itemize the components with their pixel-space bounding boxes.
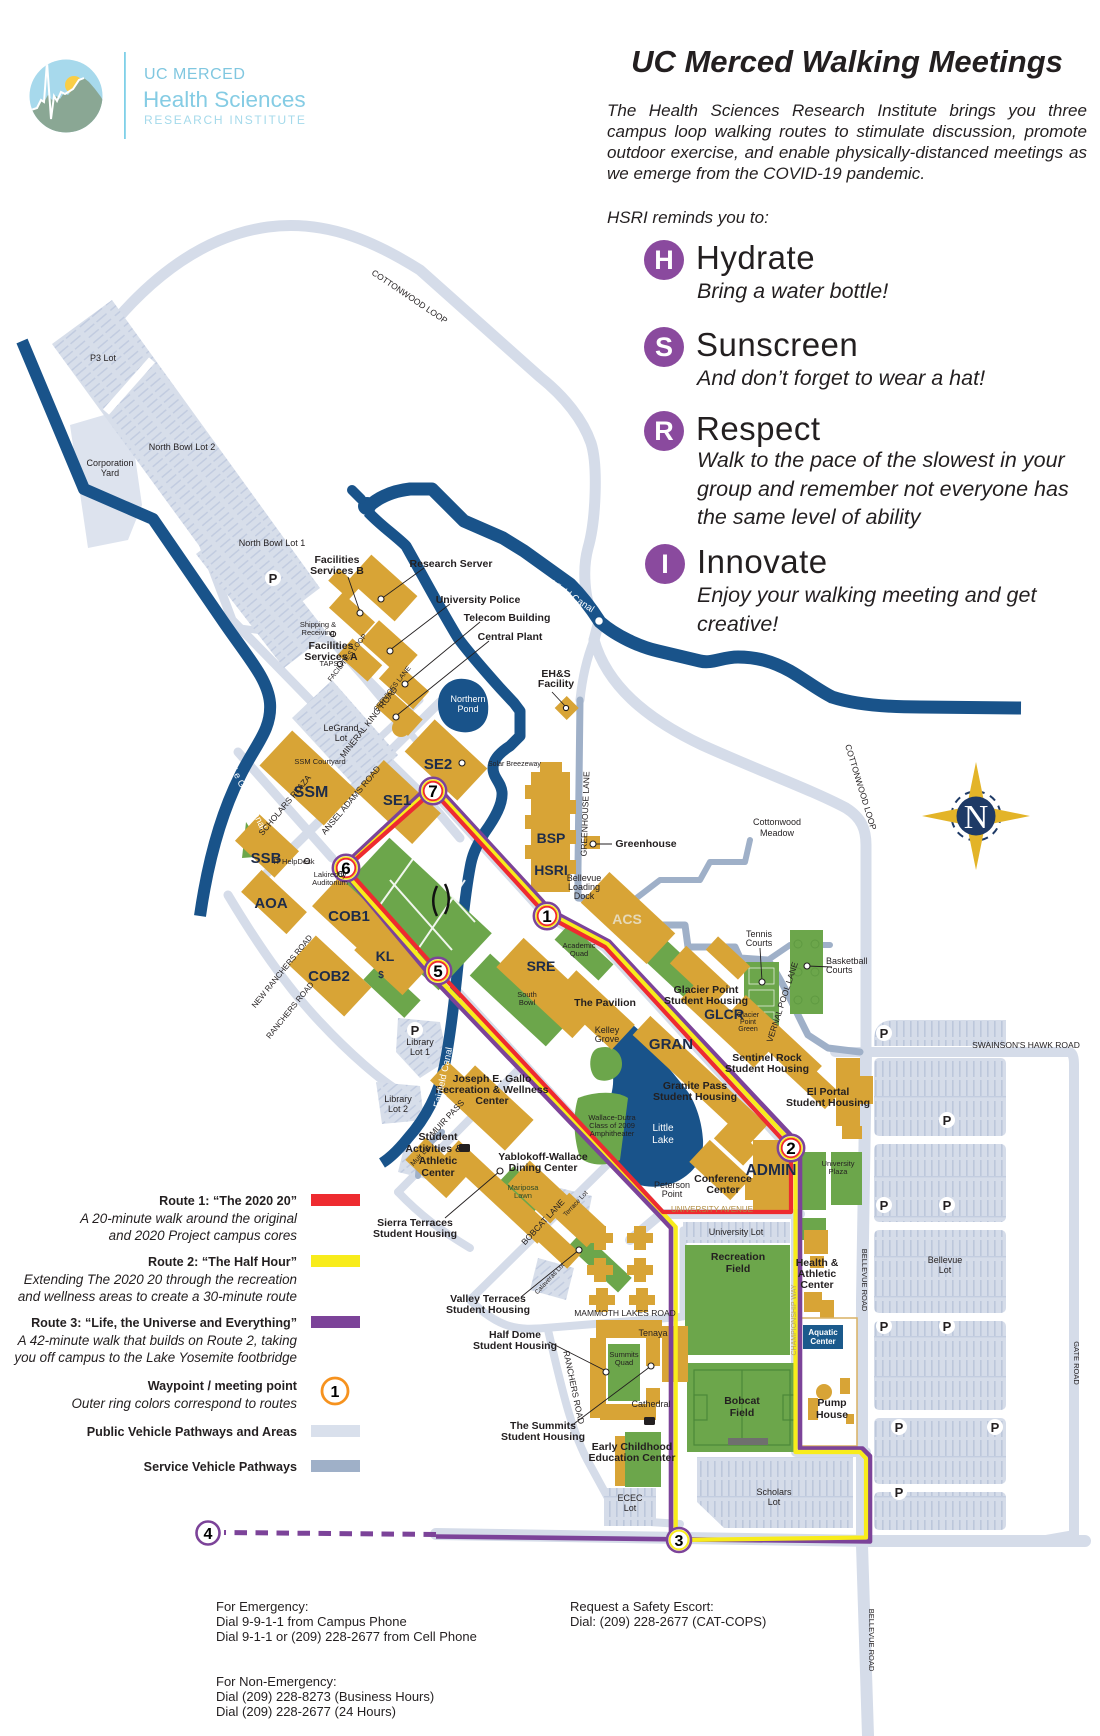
svg-text:North Bowl Lot 2: North Bowl Lot 2 xyxy=(149,442,216,452)
svg-text:Greenhouse: Greenhouse xyxy=(615,838,676,850)
svg-text:Telecom Building: Telecom Building xyxy=(464,612,551,624)
svg-text:Auditorium: Auditorium xyxy=(312,878,348,887)
svg-text:P3 Lot: P3 Lot xyxy=(90,353,117,363)
svg-text:Meadow: Meadow xyxy=(760,828,795,838)
svg-text:Student Housing: Student Housing xyxy=(501,1431,585,1443)
svg-text:Point: Point xyxy=(662,1189,683,1199)
svg-text:Student Housing: Student Housing xyxy=(473,1340,557,1352)
svg-text:1: 1 xyxy=(331,1384,340,1401)
svg-text:Dining Center: Dining Center xyxy=(509,1162,578,1174)
svg-text:LeGrand: LeGrand xyxy=(323,723,358,733)
svg-text:P: P xyxy=(991,1420,1000,1435)
svg-text:Receiving: Receiving xyxy=(302,628,335,637)
svg-text:2: 2 xyxy=(786,1139,795,1158)
svg-text:P: P xyxy=(269,571,278,586)
svg-text:SWAINSON'S HAWK ROAD: SWAINSON'S HAWK ROAD xyxy=(972,1040,1080,1050)
svg-text:7: 7 xyxy=(428,782,437,801)
svg-text:1: 1 xyxy=(542,907,551,926)
svg-text:CHAMPIONSHIP WAY: CHAMPIONSHIP WAY xyxy=(791,1284,798,1355)
svg-text:Green: Green xyxy=(738,1026,758,1033)
svg-text:N: N xyxy=(964,799,989,836)
svg-text:Scholars: Scholars xyxy=(756,1487,792,1497)
svg-text:COB1: COB1 xyxy=(328,908,370,925)
svg-text:Solar Breezeway: Solar Breezeway xyxy=(488,761,541,768)
svg-text:COB2: COB2 xyxy=(308,968,350,985)
svg-text:GRAN: GRAN xyxy=(649,1036,693,1053)
svg-text:IT HelpDesk: IT HelpDesk xyxy=(273,857,314,866)
svg-text:Point: Point xyxy=(740,1019,756,1026)
svg-text:Plaza: Plaza xyxy=(829,1167,849,1176)
svg-text:Student Housing: Student Housing xyxy=(664,995,748,1007)
svg-text:P: P xyxy=(880,1198,889,1213)
svg-text:Bobcat: Bobcat xyxy=(724,1395,760,1407)
svg-text:Central Plant: Central Plant xyxy=(478,631,543,643)
svg-text:Center: Center xyxy=(810,1337,835,1346)
svg-text:Library: Library xyxy=(384,1094,412,1104)
svg-text:MAMMOTH LAKES ROAD: MAMMOTH LAKES ROAD xyxy=(574,1308,676,1318)
svg-text:P: P xyxy=(880,1319,889,1334)
svg-text:ACS: ACS xyxy=(612,911,642,927)
svg-text:Student Housing: Student Housing xyxy=(786,1097,870,1109)
svg-text:Dock: Dock xyxy=(574,891,595,901)
svg-text:Field: Field xyxy=(726,1263,751,1275)
svg-text:Lawn: Lawn xyxy=(514,1191,532,1200)
svg-text:UNIVERSITY AVENUE: UNIVERSITY AVENUE xyxy=(671,1205,753,1214)
svg-text:BELLEVUE ROAD: BELLEVUE ROAD xyxy=(860,1249,869,1312)
svg-text:Student Housing: Student Housing xyxy=(653,1091,737,1103)
svg-text:KL: KL xyxy=(376,948,395,964)
svg-text:University Police: University Police xyxy=(436,594,521,606)
svg-text:Center: Center xyxy=(800,1279,833,1291)
svg-text:BELLEVUE ROAD: BELLEVUE ROAD xyxy=(867,1609,876,1672)
svg-text:Cottonwood: Cottonwood xyxy=(753,817,801,827)
svg-text:Recreation: Recreation xyxy=(711,1251,765,1263)
svg-text:Quad: Quad xyxy=(570,949,588,958)
svg-text:COTTONWOOD LOOP: COTTONWOOD LOOP xyxy=(370,267,450,325)
svg-text:Lot: Lot xyxy=(624,1503,637,1513)
svg-text:Lot: Lot xyxy=(939,1265,952,1275)
svg-text:Education Center: Education Center xyxy=(589,1452,676,1464)
svg-text:Student Housing: Student Housing xyxy=(446,1304,530,1316)
svg-text:Center: Center xyxy=(475,1095,508,1107)
svg-text:5: 5 xyxy=(433,962,442,981)
svg-text:The Pavilion: The Pavilion xyxy=(574,997,636,1009)
svg-text:Northern: Northern xyxy=(450,694,485,704)
svg-text:Research Server: Research Server xyxy=(410,558,493,570)
svg-text:SE1: SE1 xyxy=(383,792,411,809)
svg-text:Little: Little xyxy=(652,1123,674,1134)
svg-text:BSP: BSP xyxy=(537,830,566,846)
svg-text:Bellevue: Bellevue xyxy=(928,1255,963,1265)
svg-text:Lot: Lot xyxy=(335,733,348,743)
svg-text:P: P xyxy=(411,1023,420,1038)
svg-text:Courts: Courts xyxy=(826,965,853,975)
svg-text:Grove: Grove xyxy=(595,1034,620,1044)
svg-text:Pump: Pump xyxy=(817,1397,846,1409)
svg-text:Lot 1: Lot 1 xyxy=(410,1047,430,1057)
svg-text:Facility: Facility xyxy=(538,678,574,690)
svg-text:Lot 2: Lot 2 xyxy=(388,1104,408,1114)
svg-text:P: P xyxy=(895,1420,904,1435)
svg-text:Bowl: Bowl xyxy=(519,998,536,1007)
svg-text:HSRI: HSRI xyxy=(534,862,567,878)
svg-text:Library: Library xyxy=(406,1037,434,1047)
svg-text:P: P xyxy=(943,1319,952,1334)
svg-text:Activities &: Activities & xyxy=(405,1143,463,1155)
svg-text:P: P xyxy=(943,1113,952,1128)
svg-text:Pond: Pond xyxy=(457,704,478,714)
svg-text:Student Housing: Student Housing xyxy=(373,1228,457,1240)
svg-text:Center: Center xyxy=(706,1184,739,1196)
svg-text:Services B: Services B xyxy=(310,565,364,577)
svg-text:Glacier: Glacier xyxy=(737,1012,760,1019)
svg-text:GATE ROAD: GATE ROAD xyxy=(1072,1341,1081,1385)
svg-text:3: 3 xyxy=(675,1533,684,1550)
svg-text:SSM Courtyard: SSM Courtyard xyxy=(294,757,345,766)
svg-text:SE2: SE2 xyxy=(424,756,452,773)
svg-text:Corporation: Corporation xyxy=(86,458,133,468)
svg-text:House: House xyxy=(816,1409,848,1421)
svg-text:Center: Center xyxy=(421,1167,454,1179)
svg-text:North Bowl Lot 1: North Bowl Lot 1 xyxy=(239,538,306,548)
svg-text:4: 4 xyxy=(204,1526,213,1543)
svg-text:University Lot: University Lot xyxy=(709,1227,764,1237)
svg-text:Tenaya: Tenaya xyxy=(638,1328,667,1338)
svg-text:Quad: Quad xyxy=(615,1358,633,1367)
svg-text:P: P xyxy=(943,1198,952,1213)
svg-text:Lake: Lake xyxy=(652,1135,674,1146)
svg-text:P: P xyxy=(895,1485,904,1500)
svg-text:Courts: Courts xyxy=(746,938,773,948)
svg-text:ECEC: ECEC xyxy=(617,1493,643,1503)
svg-text:Yard: Yard xyxy=(101,468,119,478)
svg-text:SRE: SRE xyxy=(527,958,556,974)
svg-text:Student Housing: Student Housing xyxy=(725,1063,809,1075)
svg-text:ADMIN: ADMIN xyxy=(746,1162,797,1179)
svg-text:AOA: AOA xyxy=(254,895,288,912)
svg-text:Cathedral: Cathedral xyxy=(631,1399,670,1409)
svg-text:$: $ xyxy=(378,970,384,981)
svg-text:P: P xyxy=(880,1026,889,1041)
svg-text:Aquatic: Aquatic xyxy=(808,1328,838,1337)
svg-text:Lot: Lot xyxy=(768,1497,781,1507)
svg-text:Field: Field xyxy=(730,1407,755,1419)
svg-text:Amphitheater: Amphitheater xyxy=(590,1129,635,1138)
